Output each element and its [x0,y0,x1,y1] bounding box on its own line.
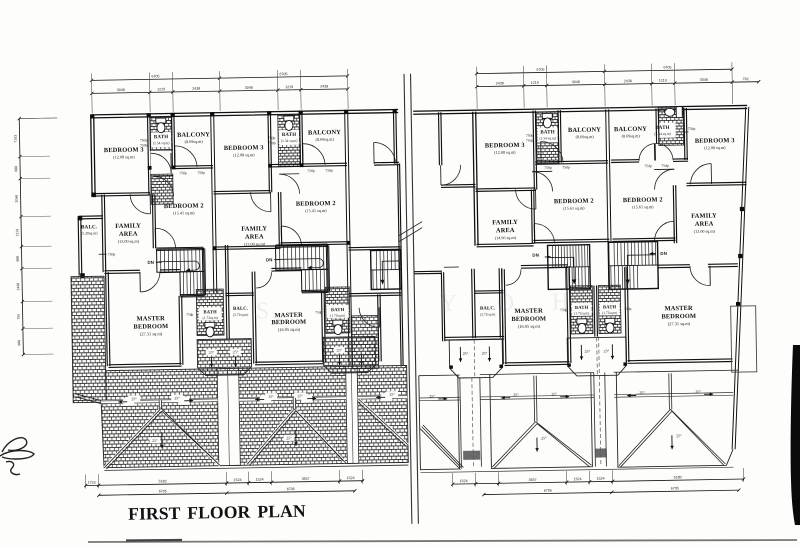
svg-text:75dp: 75dp [315,310,322,314]
svg-text:6705: 6705 [279,72,287,76]
svg-text:MASTER: MASTER [137,315,166,322]
svg-text:75dp: 75dp [560,308,567,312]
svg-text:BATH: BATH [655,126,669,131]
svg-text:BEDROOM 2: BEDROOM 2 [164,202,204,210]
svg-text:25°: 25° [286,435,292,440]
svg-text:AREA: AREA [119,231,138,238]
svg-text:FIRST FLOOR PLAN: FIRST FLOOR PLAN [128,501,306,524]
svg-text:BATH: BATH [575,305,589,310]
svg-text:(1.72sq.m): (1.72sq.m) [203,316,219,320]
svg-text:25°: 25° [131,397,137,401]
svg-text:2438: 2438 [496,81,504,85]
svg-text:25°: 25° [541,435,547,440]
svg-text:25°: 25° [676,433,682,438]
svg-text:(15.41 sq.m): (15.41 sq.m) [173,210,195,215]
svg-text:BALCONY: BALCONY [568,126,601,134]
svg-text:BALCONY: BALCONY [614,126,647,134]
svg-text:(1.54 sq.m): (1.54 sq.m) [281,139,298,143]
svg-text:(1.54 sq.m): (1.54 sq.m) [153,141,170,145]
svg-text:750p: 750p [307,169,315,173]
svg-text:6705: 6705 [663,65,671,69]
svg-text:25°: 25° [297,394,303,398]
svg-text:2438: 2438 [320,84,328,88]
svg-text:25°: 25° [463,352,469,356]
svg-text:750: 750 [17,314,21,320]
svg-text:(8.69sq.m): (8.69sq.m) [622,133,641,138]
svg-text:3048: 3048 [700,78,708,82]
svg-text:AREA: AREA [695,221,714,228]
svg-text:(13.00 sq.m): (13.00 sq.m) [118,239,140,244]
svg-text:BEDROOM: BEDROOM [133,323,168,331]
svg-text:(16.95 sq.m): (16.95 sq.m) [518,324,541,329]
svg-text:750p: 750p [325,169,333,173]
svg-text:(8.69sq.m): (8.69sq.m) [316,137,335,142]
svg-text:25°: 25° [233,349,239,354]
svg-text:BEDROOM 3: BEDROOM 3 [224,144,264,152]
svg-text:BATH: BATH [203,309,217,314]
svg-text:BATH: BATH [331,307,345,312]
svg-text:75dp: 75dp [644,164,652,168]
svg-text:25°: 25° [336,348,342,353]
svg-text:762: 762 [743,77,749,81]
svg-text:6705: 6705 [536,68,544,72]
svg-text:DN: DN [660,251,667,256]
svg-text:25°: 25° [152,438,158,443]
svg-text:BEDROOM 2: BEDROOM 2 [554,198,594,206]
svg-text:750p: 750p [108,252,116,256]
svg-text:25°: 25° [429,394,435,398]
svg-text:1219: 1219 [157,87,165,91]
svg-text:750p: 750p [140,143,148,147]
svg-text:BEDROOM: BEDROOM [271,319,306,327]
svg-text:1219: 1219 [285,85,293,89]
svg-text:BEDROOM: BEDROOM [511,315,546,323]
svg-text:(14.96 sq.m): (14.96 sq.m) [495,235,517,240]
svg-text:75dp: 75dp [688,127,696,131]
svg-text:(12.08 sq.m): (12.08 sq.m) [113,154,135,159]
svg-text:MASTER: MASTER [664,305,693,312]
svg-text:3048: 3048 [572,80,580,84]
svg-text:2438: 2438 [192,87,200,91]
svg-text:(12.08 sq.m): (12.08 sq.m) [494,150,516,155]
svg-text:(15.61 sq.m): (15.61 sq.m) [563,205,585,210]
svg-text:(8.69sq.m): (8.69sq.m) [576,134,595,139]
svg-text:FAMILY: FAMILY [115,223,141,230]
svg-text:BEDROOM 2: BEDROOM 2 [623,196,663,204]
svg-text:BATH: BATH [282,133,296,138]
svg-text:1524: 1524 [597,477,605,481]
svg-text:FAMILY: FAMILY [691,212,717,219]
svg-text:25°: 25° [695,390,701,394]
svg-text:BEDROOM 3: BEDROOM 3 [104,146,144,154]
svg-text:+5dp: +5dp [624,307,632,311]
svg-text:(1.72sq.m): (1.72sq.m) [330,313,346,317]
svg-text:BEDROOM 3: BEDROOM 3 [485,142,525,150]
svg-text:(1.72sq.m): (1.72sq.m) [602,311,618,315]
svg-text:AREA: AREA [245,233,264,240]
svg-text:6705: 6705 [671,486,679,490]
svg-text:(13.00 sq.m): (13.00 sq.m) [694,228,716,233]
svg-text:BEDROOM 3: BEDROOM 3 [695,137,735,145]
svg-text:(27.31 sq.m): (27.31 sq.m) [668,321,691,326]
svg-text:7163: 7163 [14,135,18,143]
svg-text:FAMILY: FAMILY [492,219,518,226]
svg-text:888: 888 [17,340,21,346]
svg-text:6705: 6705 [151,74,159,78]
svg-text:(15.41 sq.m): (15.41 sq.m) [305,208,327,213]
svg-text:25°: 25° [604,349,610,353]
svg-text:750p: 750p [544,166,552,170]
svg-text:1524: 1524 [460,479,468,483]
svg-text:BALC.: BALC. [233,307,248,312]
svg-text:BALC.: BALC. [480,306,495,311]
svg-text:888: 888 [16,256,20,262]
svg-text:750p: 750p [197,171,205,175]
svg-text:1524: 1524 [574,477,582,481]
svg-text:(1.54 sq.m): (1.54 sq.m) [539,136,556,140]
svg-text:(3.72sq.m): (3.72sq.m) [480,312,496,316]
svg-text:BATH: BATH [603,304,617,309]
svg-text:(12.08 sq.m): (12.08 sq.m) [704,145,726,150]
svg-text:5180: 5180 [674,475,682,479]
svg-text:25°: 25° [209,350,215,355]
svg-text:750p: 750p [268,141,276,145]
svg-text:1219: 1219 [15,229,19,237]
svg-text:75dp: 75dp [661,164,669,168]
svg-text:888: 888 [14,166,18,172]
svg-text:750p: 750p [179,171,187,175]
svg-text:DN: DN [147,260,154,265]
svg-text:1524: 1524 [347,476,355,480]
svg-text:BALCONY: BALCONY [308,129,341,137]
svg-text:AREA: AREA [496,227,515,234]
svg-text:(3.72sq.m): (3.72sq.m) [233,313,249,317]
svg-text:25°: 25° [551,392,557,396]
svg-text:(5.20sq.m): (5.20sq.m) [81,231,98,235]
svg-text:25°: 25° [268,395,274,399]
svg-text:(15.61 sq.m): (15.61 sq.m) [632,204,654,209]
svg-text:25°: 25° [174,396,180,400]
svg-text:BEDROOM 2: BEDROOM 2 [296,200,336,208]
svg-text:750p: 750p [562,166,570,170]
svg-text:25°: 25° [585,350,591,354]
svg-text:5182: 5182 [159,479,167,483]
svg-text:MASTER: MASTER [515,308,544,315]
svg-text:3048: 3048 [245,86,253,90]
svg-text:75dp: 75dp [186,313,193,317]
svg-text:BATH: BATH [540,130,554,135]
svg-text:6705: 6705 [287,487,295,491]
svg-text:(1.72sq.m): (1.72sq.m) [574,311,590,315]
svg-text:1524: 1524 [234,478,242,482]
svg-text:25°: 25° [513,393,519,397]
svg-text:750p: 750p [526,134,534,138]
svg-text:BEDROOM: BEDROOM [661,313,696,321]
svg-text:1219: 1219 [659,79,667,83]
svg-text:(8.69sq.m): (8.69sq.m) [185,139,204,144]
svg-text:DN: DN [266,257,273,262]
svg-text:750p: 750p [140,138,148,142]
svg-text:6705: 6705 [544,489,552,493]
svg-text:BALCONY: BALCONY [177,131,210,139]
svg-text:2438: 2438 [624,79,632,83]
svg-text:DN: DN [532,253,539,258]
svg-text:3657: 3657 [529,478,537,482]
svg-text:3657: 3657 [302,477,310,481]
svg-text:1524: 1524 [256,478,264,482]
svg-text:S: S [256,298,270,324]
svg-text:(16.95 sq.m): (16.95 sq.m) [278,327,301,332]
svg-text:750p: 750p [268,136,276,140]
svg-text:1219: 1219 [531,81,539,85]
svg-text:25°: 25° [482,351,488,355]
svg-text:1753: 1753 [88,481,96,485]
svg-text:3048: 3048 [117,88,125,92]
svg-text:(12.08 sq.m): (12.08 sq.m) [233,152,255,157]
svg-text:(27.31 sq.m): (27.31 sq.m) [140,331,163,336]
svg-text:25°: 25° [389,393,395,397]
svg-text:25°: 25° [639,391,645,395]
svg-text:3048: 3048 [15,195,19,203]
svg-text:FAMILY: FAMILY [241,225,267,232]
svg-text:750p: 750p [526,139,534,143]
svg-text:BALC.: BALC. [81,224,98,230]
svg-text:2438: 2438 [16,283,20,291]
svg-text:6705: 6705 [159,489,167,493]
svg-text:BATH: BATH [154,135,168,140]
